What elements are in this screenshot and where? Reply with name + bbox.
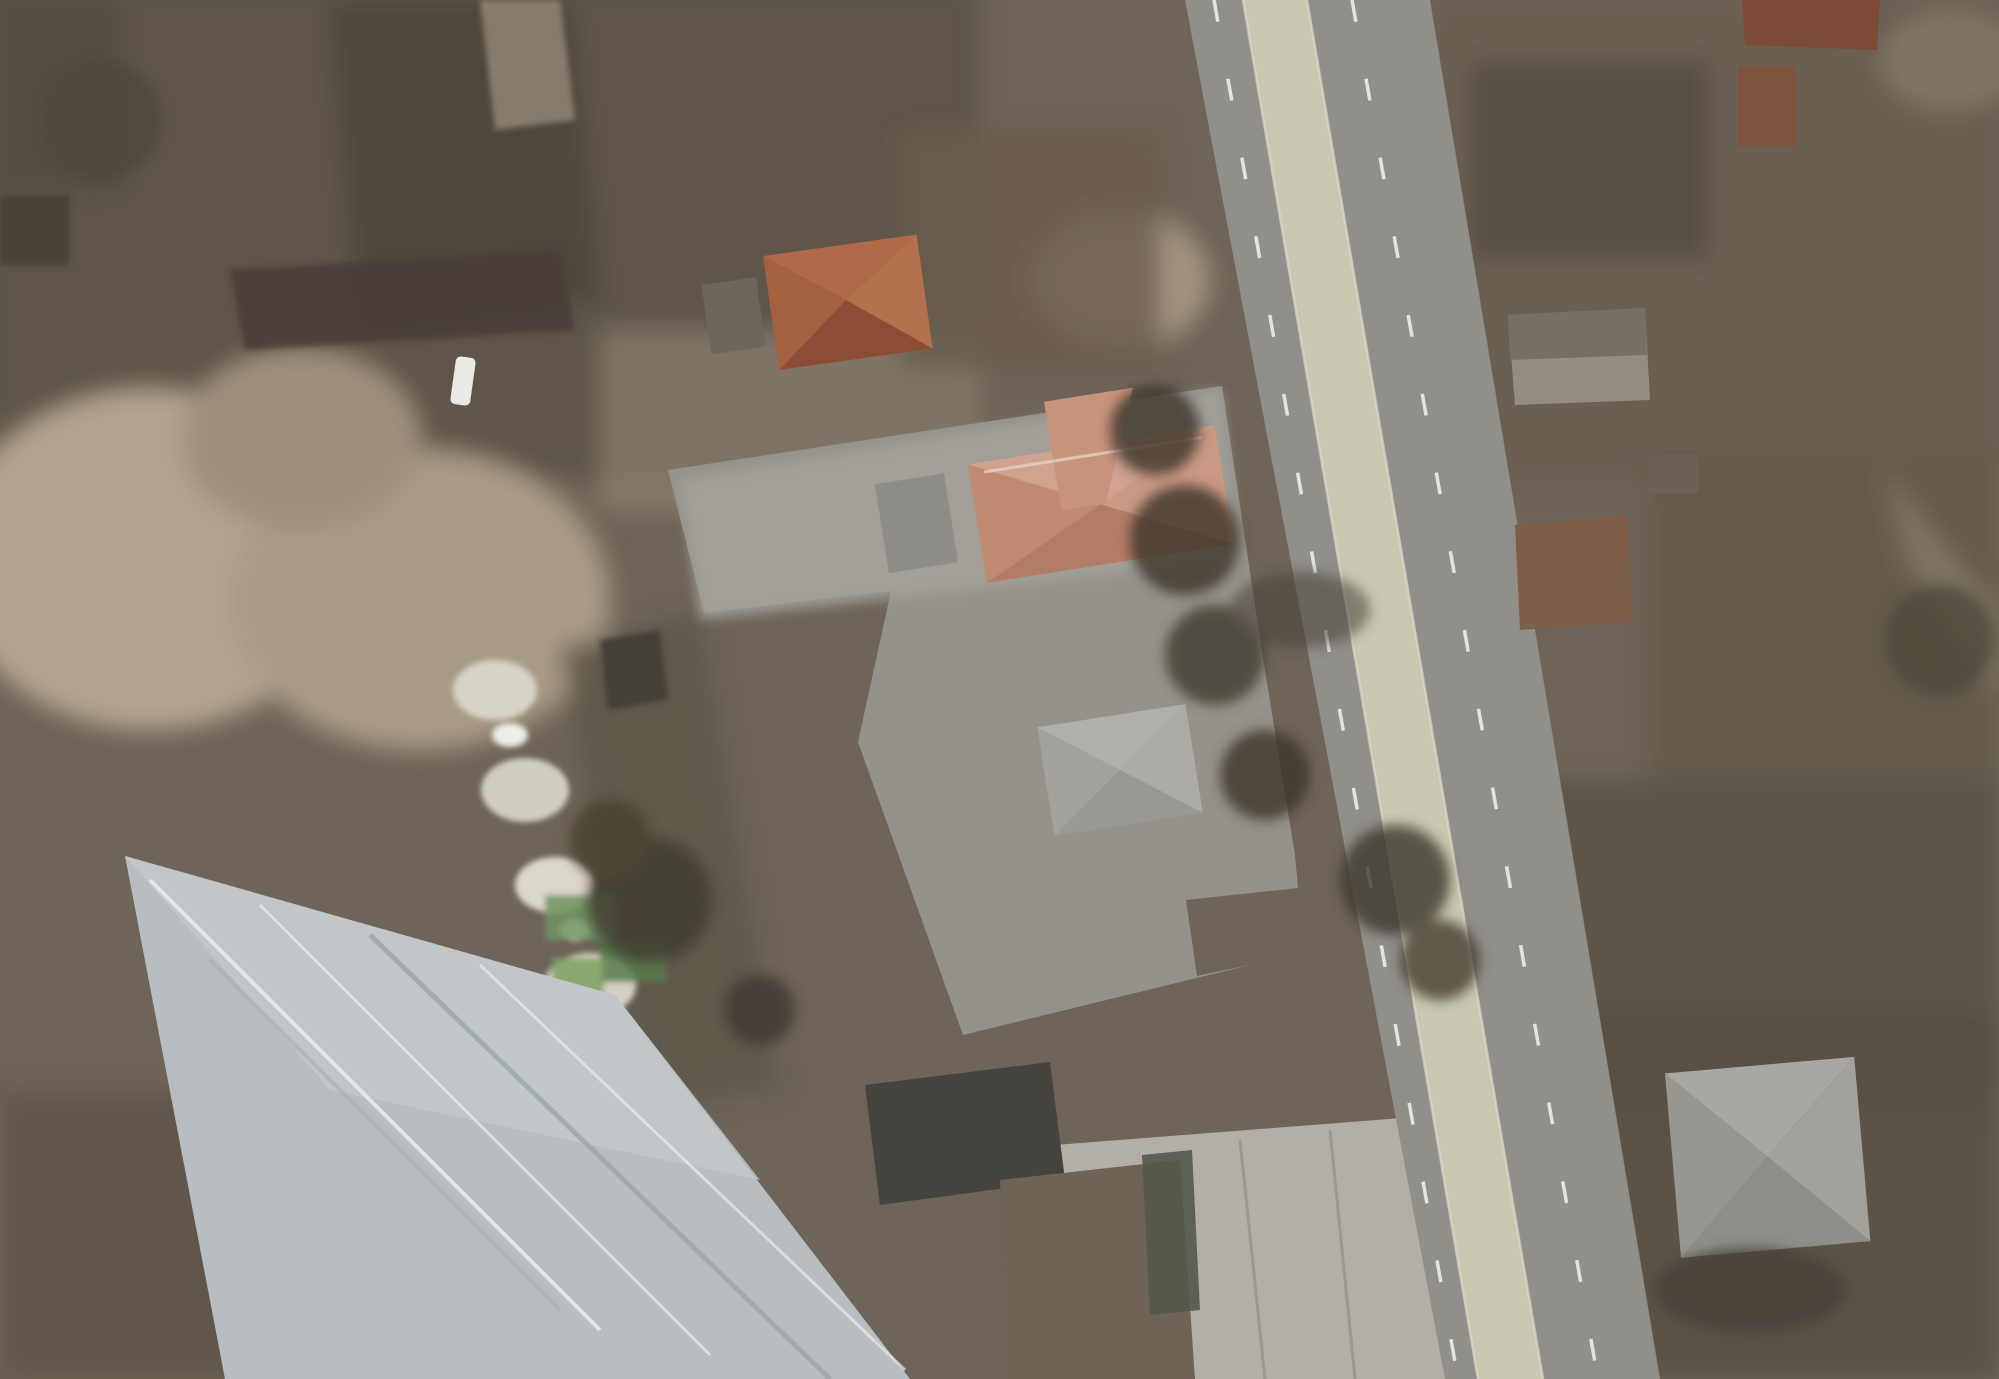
cadastral-map (0, 0, 1999, 1379)
building-roof-133 (1665, 1057, 1870, 1258)
building-roof-gray (1037, 704, 1202, 836)
map-canvas[interactable] (0, 0, 1999, 1379)
aerial-photo-background (0, 0, 1999, 1379)
